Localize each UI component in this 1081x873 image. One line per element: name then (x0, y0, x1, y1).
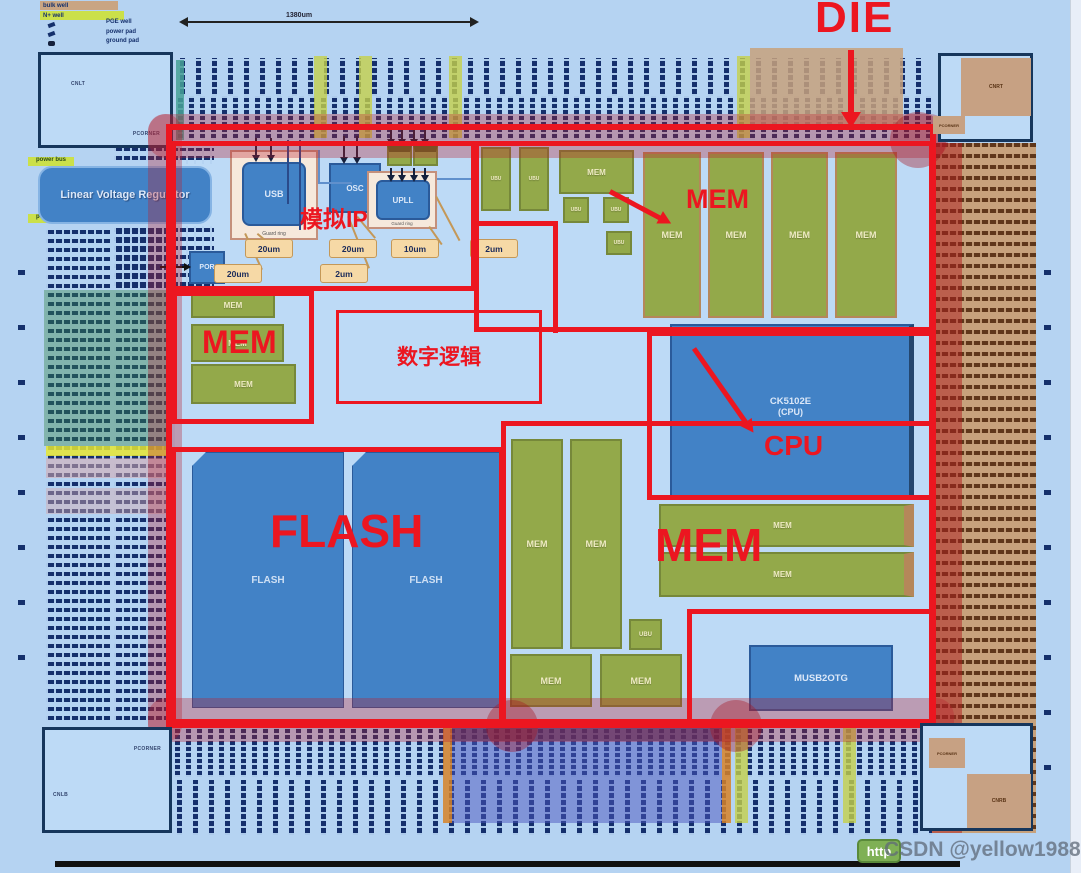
mem-region-step-line (553, 221, 558, 333)
mem-region-step-line (474, 221, 558, 226)
legend-item-pge-well: PGE well (106, 19, 132, 25)
legend-row-label: bulk well (43, 3, 68, 9)
analog-ip-annotation: 模拟IP (300, 208, 368, 231)
pcorner-label: PCORNER (939, 123, 959, 128)
right-edge-tick-marks (1044, 260, 1051, 820)
die-annotation: DIE (815, 0, 894, 40)
legend-row-label: N+ well (43, 13, 64, 19)
mem-top-region-box (474, 141, 934, 332)
dimension-arrowhead-left (179, 17, 188, 27)
legend-item-power-pad: power pad (106, 29, 136, 35)
musb-region-box (687, 609, 934, 724)
legend-row-bulk-well: bulk well (40, 1, 118, 10)
pcorner-label: PCORNER (134, 746, 161, 752)
die-arrow-line (848, 50, 854, 114)
corner-tan-block: PCORNER (933, 116, 965, 134)
legend-symbol (48, 31, 56, 37)
corner-label: CNLT (71, 81, 85, 87)
corner-tan-block: CNRB (967, 774, 1031, 828)
digital-logic-label: 数字逻辑 (397, 347, 481, 368)
legend-item-ground-pad: ground pad (106, 38, 139, 44)
width-dimension-line (187, 21, 471, 23)
corner-tan-block: CNRT (961, 58, 1031, 116)
pcorner-label: PCORNER (937, 751, 957, 756)
corner-label: CNRT (989, 84, 1003, 90)
watermark-text: CSDN @yellow1988 (884, 838, 1081, 862)
legend-symbol (48, 22, 56, 28)
width-dimension-label: 1380um (286, 12, 312, 19)
dimension-arrowhead-right (470, 17, 479, 27)
corner-label: CNLB (53, 792, 68, 798)
mem-annotation: MEM (655, 522, 762, 568)
bottom-black-bar (55, 861, 960, 867)
corner-tan-block: PCORNER (929, 738, 965, 768)
power-bus-label: power bus (28, 157, 74, 166)
digital-logic-box: 数字逻辑 (336, 310, 542, 404)
corner-cell-top-right: CNRT PCORNER (938, 53, 1033, 142)
flash-region-box (171, 447, 504, 724)
die-floorplan-screenshot: bulk well N+ well PGE well power pad gro… (0, 0, 1081, 873)
right-frame-line (1070, 0, 1081, 873)
corner-cell-bottom-left: PCORNER CNLB (42, 727, 172, 833)
corner-label: CNRB (992, 798, 1006, 804)
left-edge-tick-marks (18, 240, 25, 710)
mem-annotation: MEM (686, 186, 749, 213)
corner-cell-bottom-right: PCORNER CNRB (920, 723, 1033, 831)
flash-annotation: FLASH (270, 508, 423, 554)
die-arrowhead (841, 112, 861, 128)
cpu-annotation: CPU (764, 432, 823, 460)
legend-symbol (48, 41, 55, 46)
mem-annotation: MEM (202, 326, 277, 358)
